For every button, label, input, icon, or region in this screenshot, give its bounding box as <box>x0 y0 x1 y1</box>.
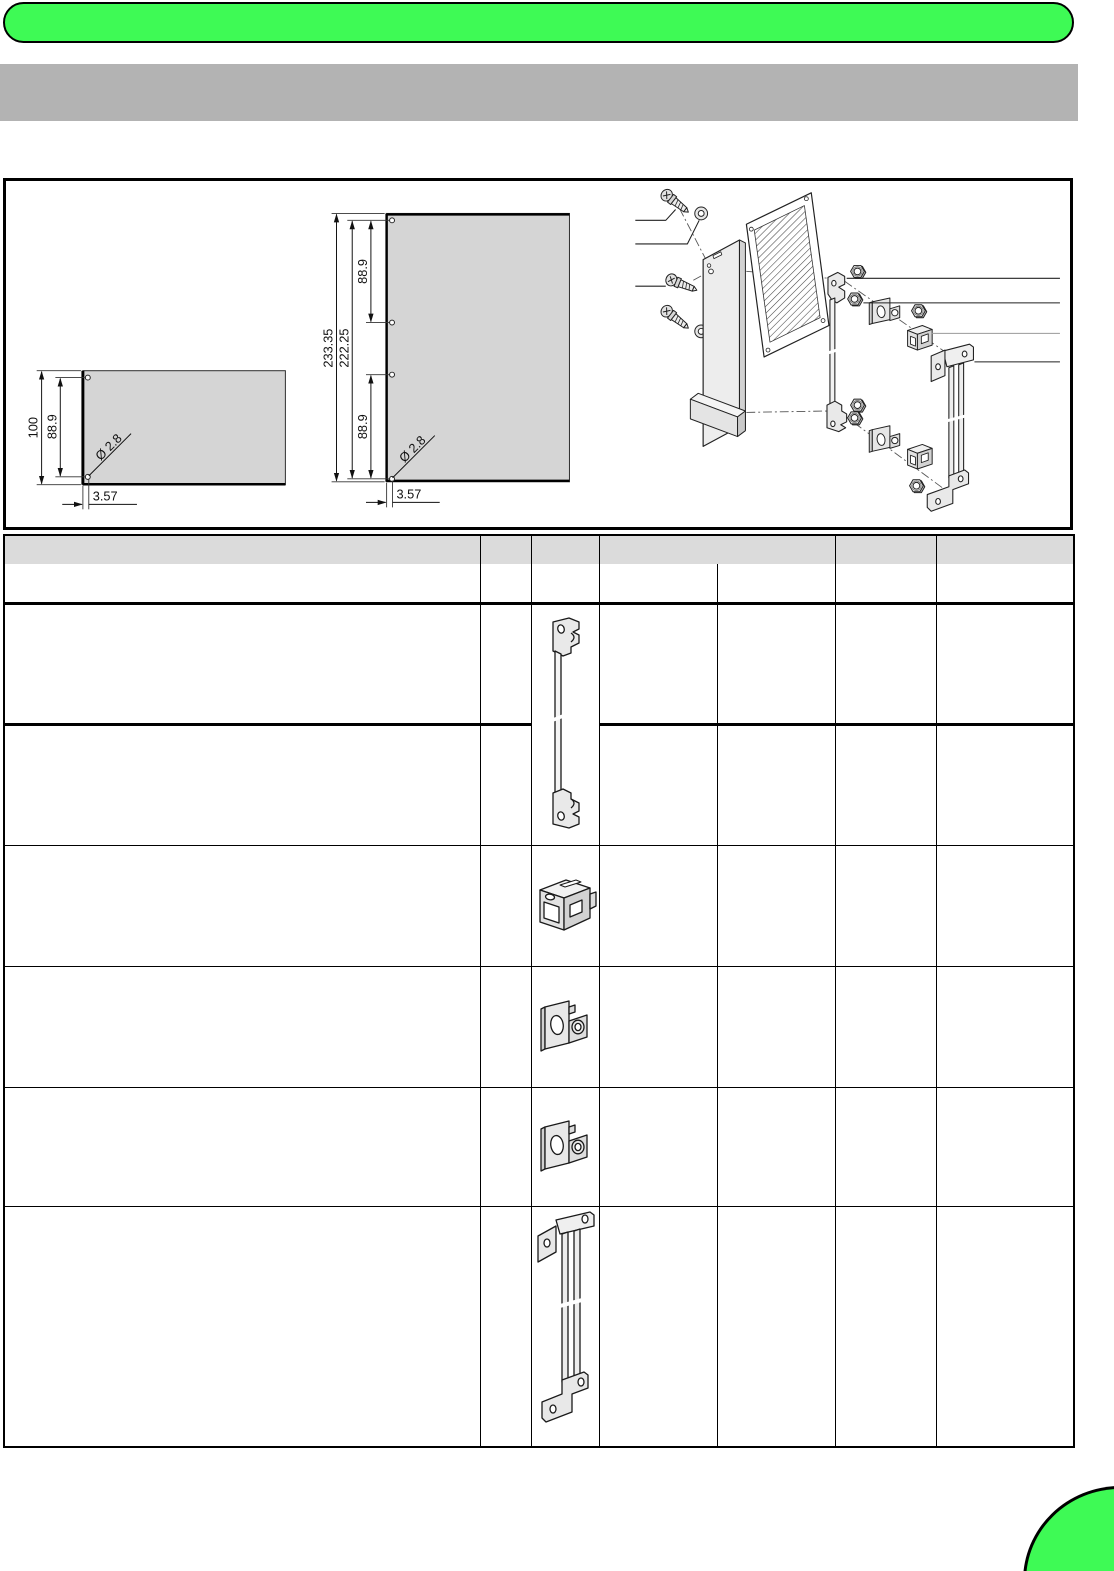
title-banner <box>3 2 1074 43</box>
part-icon-cell <box>531 1088 599 1207</box>
oval-hole-clip-icon <box>869 298 899 325</box>
table-cell <box>936 1207 1074 1448</box>
parts-table <box>3 534 1075 1448</box>
table-cell <box>835 604 936 725</box>
table-cell <box>599 846 717 967</box>
header-cell <box>531 535 599 564</box>
table-cell <box>717 1088 835 1207</box>
description-cell <box>4 1088 480 1207</box>
table-cell <box>717 1207 835 1448</box>
part-icon-cell <box>531 1207 599 1448</box>
subheader-cell <box>717 564 835 604</box>
table-cell <box>835 846 936 967</box>
hex-nut-icon <box>910 480 925 493</box>
table-row <box>4 967 1074 1088</box>
table-cell <box>717 604 835 725</box>
catalog-page: 100 88.9 Ø 2.8 3.57 <box>0 0 1114 1571</box>
cage-clip-icon <box>532 870 598 938</box>
cage-clip-icon <box>908 325 933 350</box>
part-icon-cell <box>531 967 599 1088</box>
hex-nut-icon <box>848 293 863 306</box>
dim-overall-height: 233.35 <box>321 329 336 368</box>
screw-icon <box>664 272 699 296</box>
table-row <box>4 846 1074 967</box>
oval-hole-clip-icon <box>535 995 595 1055</box>
table-cell <box>599 604 717 725</box>
table-cell <box>599 725 717 846</box>
hex-nut-icon <box>851 399 866 412</box>
subheader-cell <box>480 564 531 604</box>
subheader-cell <box>599 564 717 604</box>
oval-hole-clip-icon <box>535 1115 595 1175</box>
hex-nut-icon <box>848 412 863 425</box>
table-row <box>4 1207 1074 1448</box>
table-row <box>4 1088 1074 1207</box>
dim-edge-offset: 3.57 <box>93 488 118 503</box>
table-cell <box>835 1207 936 1448</box>
part-icon-cell <box>531 846 599 967</box>
table-cell <box>480 1088 531 1207</box>
header-cell <box>4 535 480 564</box>
table-subheader-row <box>4 564 1074 604</box>
mounting-rail-bracket-icon <box>532 1210 600 1438</box>
subheader-cell <box>936 564 1074 604</box>
dim-upper-hole-spacing: 88.9 <box>355 259 370 284</box>
table-cell <box>717 846 835 967</box>
part-icon-cell <box>531 604 599 846</box>
technical-figure: 100 88.9 Ø 2.8 3.57 <box>3 178 1073 530</box>
table-cell <box>936 725 1074 846</box>
table-cell <box>835 967 936 1088</box>
description-cell <box>4 604 480 725</box>
header-cell <box>936 535 1074 564</box>
table-cell <box>936 967 1074 1088</box>
screw-icon <box>659 303 692 333</box>
subheader-cell <box>531 564 599 604</box>
header-cell <box>835 535 936 564</box>
table-cell <box>936 604 1074 725</box>
header-cell <box>480 535 531 564</box>
dim-hole-span: 222.25 <box>336 329 351 368</box>
dim-edge-offset: 3.57 <box>396 486 421 501</box>
oval-hole-clip-icon <box>869 426 899 453</box>
table-cell <box>480 1207 531 1448</box>
table-cell <box>835 725 936 846</box>
table-cell <box>835 1088 936 1207</box>
table-cell <box>599 1207 717 1448</box>
small-panel-drawing: 100 88.9 Ø 2.8 3.57 <box>26 371 286 510</box>
washer-icon <box>695 207 708 220</box>
dim-overall-height: 100 <box>26 417 41 438</box>
cage-clip-icon <box>908 444 933 469</box>
table-header-row <box>4 535 1074 564</box>
front-panel <box>690 240 745 446</box>
table-cell <box>717 967 835 1088</box>
perforated-board <box>746 193 829 357</box>
page-corner-tab <box>1023 1486 1114 1571</box>
table-row <box>4 604 1074 725</box>
hex-nut-icon <box>912 305 927 318</box>
description-cell <box>4 846 480 967</box>
table-cell <box>599 1088 717 1207</box>
hex-nut-icon <box>851 265 866 278</box>
exploded-assembly-drawing <box>635 187 1060 511</box>
table-cell <box>599 967 717 1088</box>
table-cell <box>717 725 835 846</box>
table-cell <box>480 725 531 846</box>
subheader-cell <box>4 564 480 604</box>
card-guide-adapter-icon <box>540 617 590 829</box>
large-panel-drawing: 233.35 222.25 88.9 88.9 Ø 2.8 3.57 <box>321 213 570 507</box>
header-cell <box>599 535 835 564</box>
mounting-rail-bracket <box>927 344 973 511</box>
description-cell <box>4 725 480 846</box>
dim-hole-spacing: 88.9 <box>44 414 59 439</box>
table-cell <box>936 846 1074 967</box>
subheader-cell <box>835 564 936 604</box>
description-cell <box>4 1207 480 1448</box>
subtitle-bar <box>0 64 1078 121</box>
table-cell <box>480 967 531 1088</box>
table-cell <box>480 846 531 967</box>
table-cell <box>936 1088 1074 1207</box>
figure-drawing: 100 88.9 Ø 2.8 3.57 <box>6 181 1070 527</box>
screw-icon <box>659 187 692 217</box>
dim-lower-hole-spacing: 88.9 <box>355 414 370 439</box>
table-cell <box>480 604 531 725</box>
description-cell <box>4 967 480 1088</box>
card-guide-adapter <box>827 272 847 431</box>
